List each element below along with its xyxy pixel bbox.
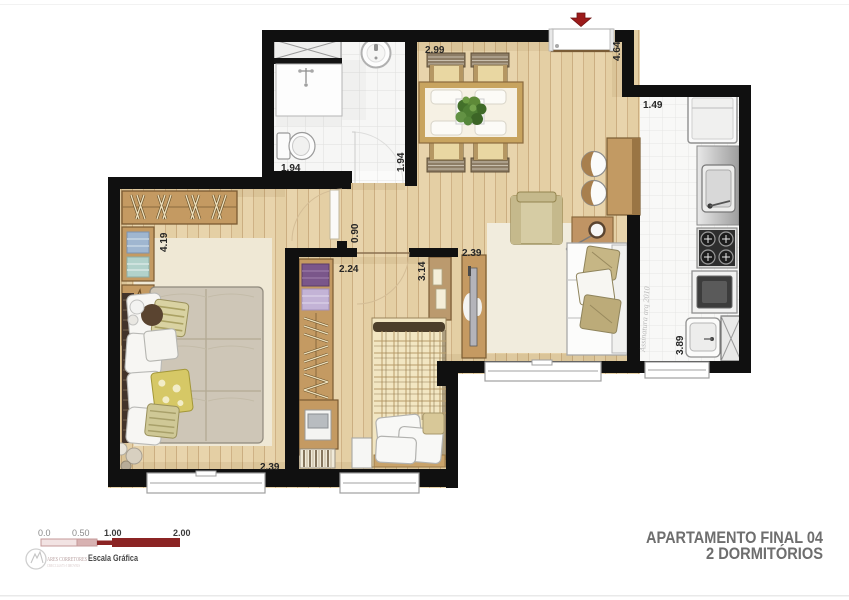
svg-text:1.94: 1.94 — [396, 152, 407, 172]
svg-text:CRECI 24.675-J IMOVEIS: CRECI 24.675-J IMOVEIS — [47, 563, 80, 568]
svg-text:4.19: 4.19 — [159, 232, 170, 252]
svg-text:3.14: 3.14 — [417, 261, 428, 281]
svg-text:ARES CORRETORES: ARES CORRETORES — [47, 556, 87, 563]
svg-text:2.24: 2.24 — [339, 264, 359, 275]
svg-text:0.50: 0.50 — [72, 528, 90, 538]
svg-text:2.39: 2.39 — [462, 248, 482, 259]
svg-text:2.00: 2.00 — [173, 528, 191, 538]
svg-text:0.0: 0.0 — [38, 528, 51, 538]
svg-text:1.94: 1.94 — [281, 163, 301, 174]
svg-text:2.39: 2.39 — [260, 462, 280, 473]
svg-text:2 DORMITÓRIOS: 2 DORMITÓRIOS — [706, 544, 823, 563]
svg-text:4.64: 4.64 — [612, 41, 623, 61]
svg-text:1.00: 1.00 — [104, 528, 122, 538]
svg-text:3.89: 3.89 — [675, 335, 686, 355]
svg-text:2.99: 2.99 — [425, 45, 445, 56]
svg-text:Escala Gráfica: Escala Gráfica — [88, 553, 139, 564]
svg-text:1.49: 1.49 — [643, 100, 663, 111]
svg-text:0.90: 0.90 — [350, 223, 361, 243]
